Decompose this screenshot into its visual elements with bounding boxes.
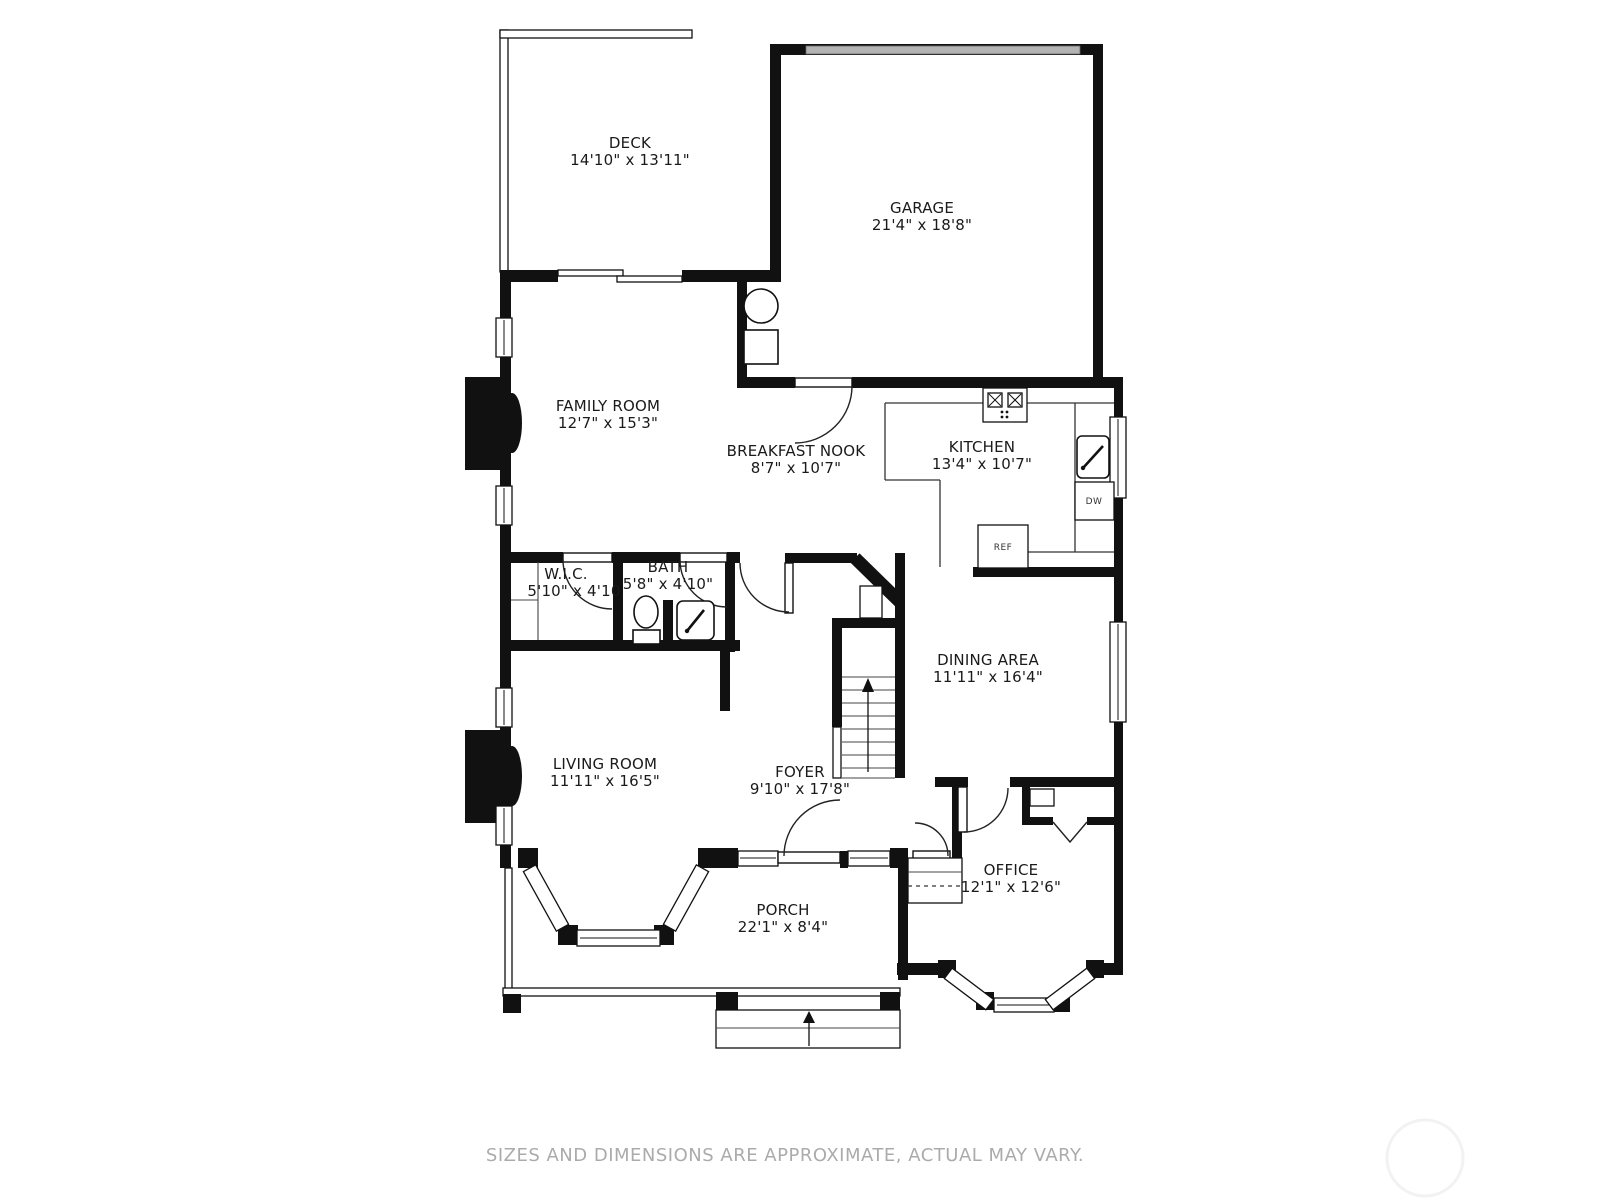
floor-plan-page: DW REF	[0, 0, 1600, 1200]
window-dining	[1110, 622, 1126, 722]
porch-edge	[503, 988, 900, 996]
fireplace-living-room	[465, 730, 522, 823]
room-dims-kitchen: 13'4" x 10'7"	[932, 455, 1032, 473]
room-dims-living-room: 11'11" x 16'5"	[550, 772, 660, 790]
window-foyer-right	[848, 851, 890, 866]
furnace-icon	[744, 330, 778, 364]
closet-door	[785, 563, 793, 613]
room-dims-wic: 5'10" x 4'10	[527, 582, 620, 600]
room-dims-office: 12'1" x 12'6"	[961, 878, 1061, 896]
room-label-dining-area: DINING AREA	[937, 651, 1039, 669]
room-dims-foyer: 9'10" x 17'8"	[750, 780, 850, 798]
front-steps	[716, 1010, 900, 1048]
water-heater-icon	[744, 289, 778, 323]
window	[496, 318, 512, 357]
room-label-kitchen: KITCHEN	[949, 438, 1015, 456]
room-label-bath: BATH	[648, 558, 689, 576]
bath-sink-icon	[677, 601, 714, 640]
room-label-deck: DECK	[609, 134, 652, 152]
closet-shelf	[860, 586, 882, 618]
deck-rail-left	[500, 30, 508, 272]
room-label-wic: W.I.C.	[544, 565, 588, 583]
room-dims-dining-area: 11'11" x 16'4"	[933, 668, 1043, 686]
window	[496, 806, 512, 845]
staircase	[833, 586, 895, 778]
disclaimer-text: SIZES AND DIMENSIONS ARE APPROXIMATE, AC…	[486, 1145, 1084, 1166]
room-label-living-room: LIVING ROOM	[553, 755, 657, 773]
window-foyer-left	[738, 851, 778, 866]
garage-door	[806, 46, 1080, 54]
dishwasher: DW	[1075, 482, 1114, 520]
kitchen-sink-icon	[1077, 436, 1109, 478]
office-door	[958, 787, 967, 832]
office-closet-bifold-door	[1053, 822, 1087, 842]
room-label-porch: PORCH	[756, 901, 809, 919]
room-label-foyer: FOYER	[775, 763, 825, 781]
toilet-icon	[633, 596, 660, 644]
room-dims-garage: 21'4" x 18'8"	[872, 216, 972, 234]
room-dims-deck: 14'10" x 13'11"	[570, 151, 690, 169]
room-label-breakfast-nook: BREAKFAST NOOK	[727, 442, 867, 460]
room-label-office: OFFICE	[984, 861, 1039, 879]
watermark-logo	[1387, 1120, 1463, 1196]
front-door	[778, 852, 840, 863]
refrigerator-label: REF	[994, 543, 1013, 553]
room-label-garage: GARAGE	[890, 199, 954, 217]
bay-window-living	[523, 865, 708, 946]
bay-window-office	[944, 968, 1094, 1012]
office-closet-shelf	[1030, 789, 1054, 806]
porch-rail-left	[505, 868, 512, 994]
room-dims-bath: 5'8" x 4'10"	[623, 575, 714, 593]
room-label-family-room: FAMILY ROOM	[556, 397, 660, 415]
kitchen-fixtures: DW REF	[885, 388, 1114, 568]
room-dims-breakfast-nook: 8'7" x 10'7"	[751, 459, 842, 477]
wic-shelving	[511, 562, 538, 640]
porch-post	[503, 994, 521, 1013]
sliding-door-deck	[558, 270, 682, 282]
garage-entry-door	[795, 378, 852, 387]
wic-door	[563, 553, 612, 562]
window	[496, 486, 512, 525]
window	[496, 688, 512, 727]
deck-rail-top	[500, 30, 692, 38]
fireplace-family-room	[465, 377, 522, 470]
dishwasher-label: DW	[1086, 497, 1103, 507]
room-dims-porch: 22'1" x 8'4"	[738, 918, 829, 936]
garage-fixtures	[744, 289, 778, 364]
refrigerator: REF	[978, 525, 1028, 568]
floor-plan-drawing: DW REF	[0, 0, 1600, 1200]
side-entry-steps	[908, 858, 962, 903]
stove-icon	[983, 388, 1027, 422]
room-dims-family-room: 12'7" x 15'3"	[558, 414, 658, 432]
